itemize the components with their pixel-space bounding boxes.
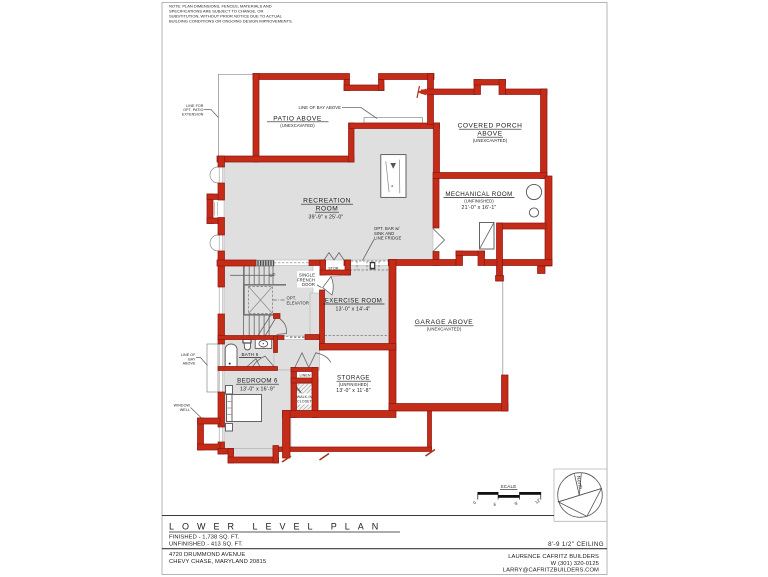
svg-text:RECREATION: RECREATION <box>303 198 351 205</box>
svg-text:13'-0" x 14'-4": 13'-0" x 14'-4" <box>336 306 371 312</box>
svg-text:13'-0" x 16'-9": 13'-0" x 16'-9" <box>240 387 275 393</box>
svg-text:BATH 6: BATH 6 <box>242 352 259 357</box>
svg-text:WALK-IN: WALK-IN <box>297 395 313 399</box>
svg-text:EXTENSION: EXTENSION <box>182 112 204 116</box>
svg-text:MECHANICAL ROOM: MECHANICAL ROOM <box>445 191 512 198</box>
svg-text:LAURENCE CAFRITZ BUILDERS: LAURENCE CAFRITZ BUILDERS <box>508 554 599 560</box>
svg-text:CHEVY CHASE, MARYLAND 20815: CHEVY CHASE, MARYLAND 20815 <box>169 559 266 565</box>
svg-text:STORAGE: STORAGE <box>337 375 370 382</box>
svg-text:SCALE: SCALE <box>500 484 516 489</box>
svg-text:PATIO ABOVE: PATIO ABOVE <box>273 115 322 122</box>
svg-text:LARRY@CAFRITZBUILDERS.COM: LARRY@CAFRITZBUILDERS.COM <box>503 568 599 574</box>
svg-text:STOR.: STOR. <box>328 266 339 270</box>
svg-text:(UNFINISHED): (UNFINISHED) <box>339 382 369 387</box>
svg-text:13'-0" x 11'-8": 13'-0" x 11'-8" <box>336 388 371 394</box>
svg-text:4720 DRUMMOND AVENUE: 4720 DRUMMOND AVENUE <box>169 552 245 558</box>
svg-text:(UNFINISHED): (UNFINISHED) <box>464 199 494 204</box>
svg-text:(UNEXCAVATED): (UNEXCAVATED) <box>473 138 508 143</box>
svg-text:39'-9" x 25'-0": 39'-9" x 25'-0" <box>309 215 344 221</box>
svg-text:(UNEXCAVATED): (UNEXCAVATED) <box>427 326 462 331</box>
svg-text:LINE OF BAY ABOVE: LINE OF BAY ABOVE <box>298 105 341 110</box>
svg-text:ELEVATOR: ELEVATOR <box>287 300 309 305</box>
svg-text:BEDROOM 6: BEDROOM 6 <box>237 378 278 385</box>
svg-text:LINEN: LINEN <box>299 374 310 378</box>
svg-text:COVERED PORCH: COVERED PORCH <box>458 123 523 130</box>
svg-text:UNFINISHED - 413 SQ. FT.: UNFINISHED - 413 SQ. FT. <box>169 541 243 547</box>
svg-text:WELL: WELL <box>180 408 190 412</box>
svg-text:21'-0" x 16'-1": 21'-0" x 16'-1" <box>462 205 497 211</box>
svg-text:UP: UP <box>270 272 276 277</box>
svg-text:CLOSET: CLOSET <box>297 400 313 404</box>
svg-text:ABOVE: ABOVE <box>477 131 502 138</box>
svg-text:FINISHED - 1,738 SQ. FT.: FINISHED - 1,738 SQ. FT. <box>169 535 240 541</box>
svg-text:(UNEXCAVATED): (UNEXCAVATED) <box>280 123 315 128</box>
svg-text:GARAGE ABOVE: GARAGE ABOVE <box>415 319 474 326</box>
svg-text:ABOVE: ABOVE <box>183 362 196 366</box>
svg-text:BUILDING CONDITIONS OR ONGOING: BUILDING CONDITIONS OR ONGOING DESIGN IM… <box>169 18 293 23</box>
svg-text:ROOM: ROOM <box>316 206 339 213</box>
svg-text:EXERCISE ROOM: EXERCISE ROOM <box>325 297 382 304</box>
svg-text:8'-9 1/2" CEILING: 8'-9 1/2" CEILING <box>548 541 604 548</box>
svg-text:DOOR: DOOR <box>302 282 315 287</box>
svg-text:LINE FRIDGE: LINE FRIDGE <box>374 236 401 241</box>
svg-text:LOWER LEVEL PLAN: LOWER LEVEL PLAN <box>169 522 386 532</box>
svg-text:W (301) 320-0125: W (301) 320-0125 <box>551 561 599 567</box>
